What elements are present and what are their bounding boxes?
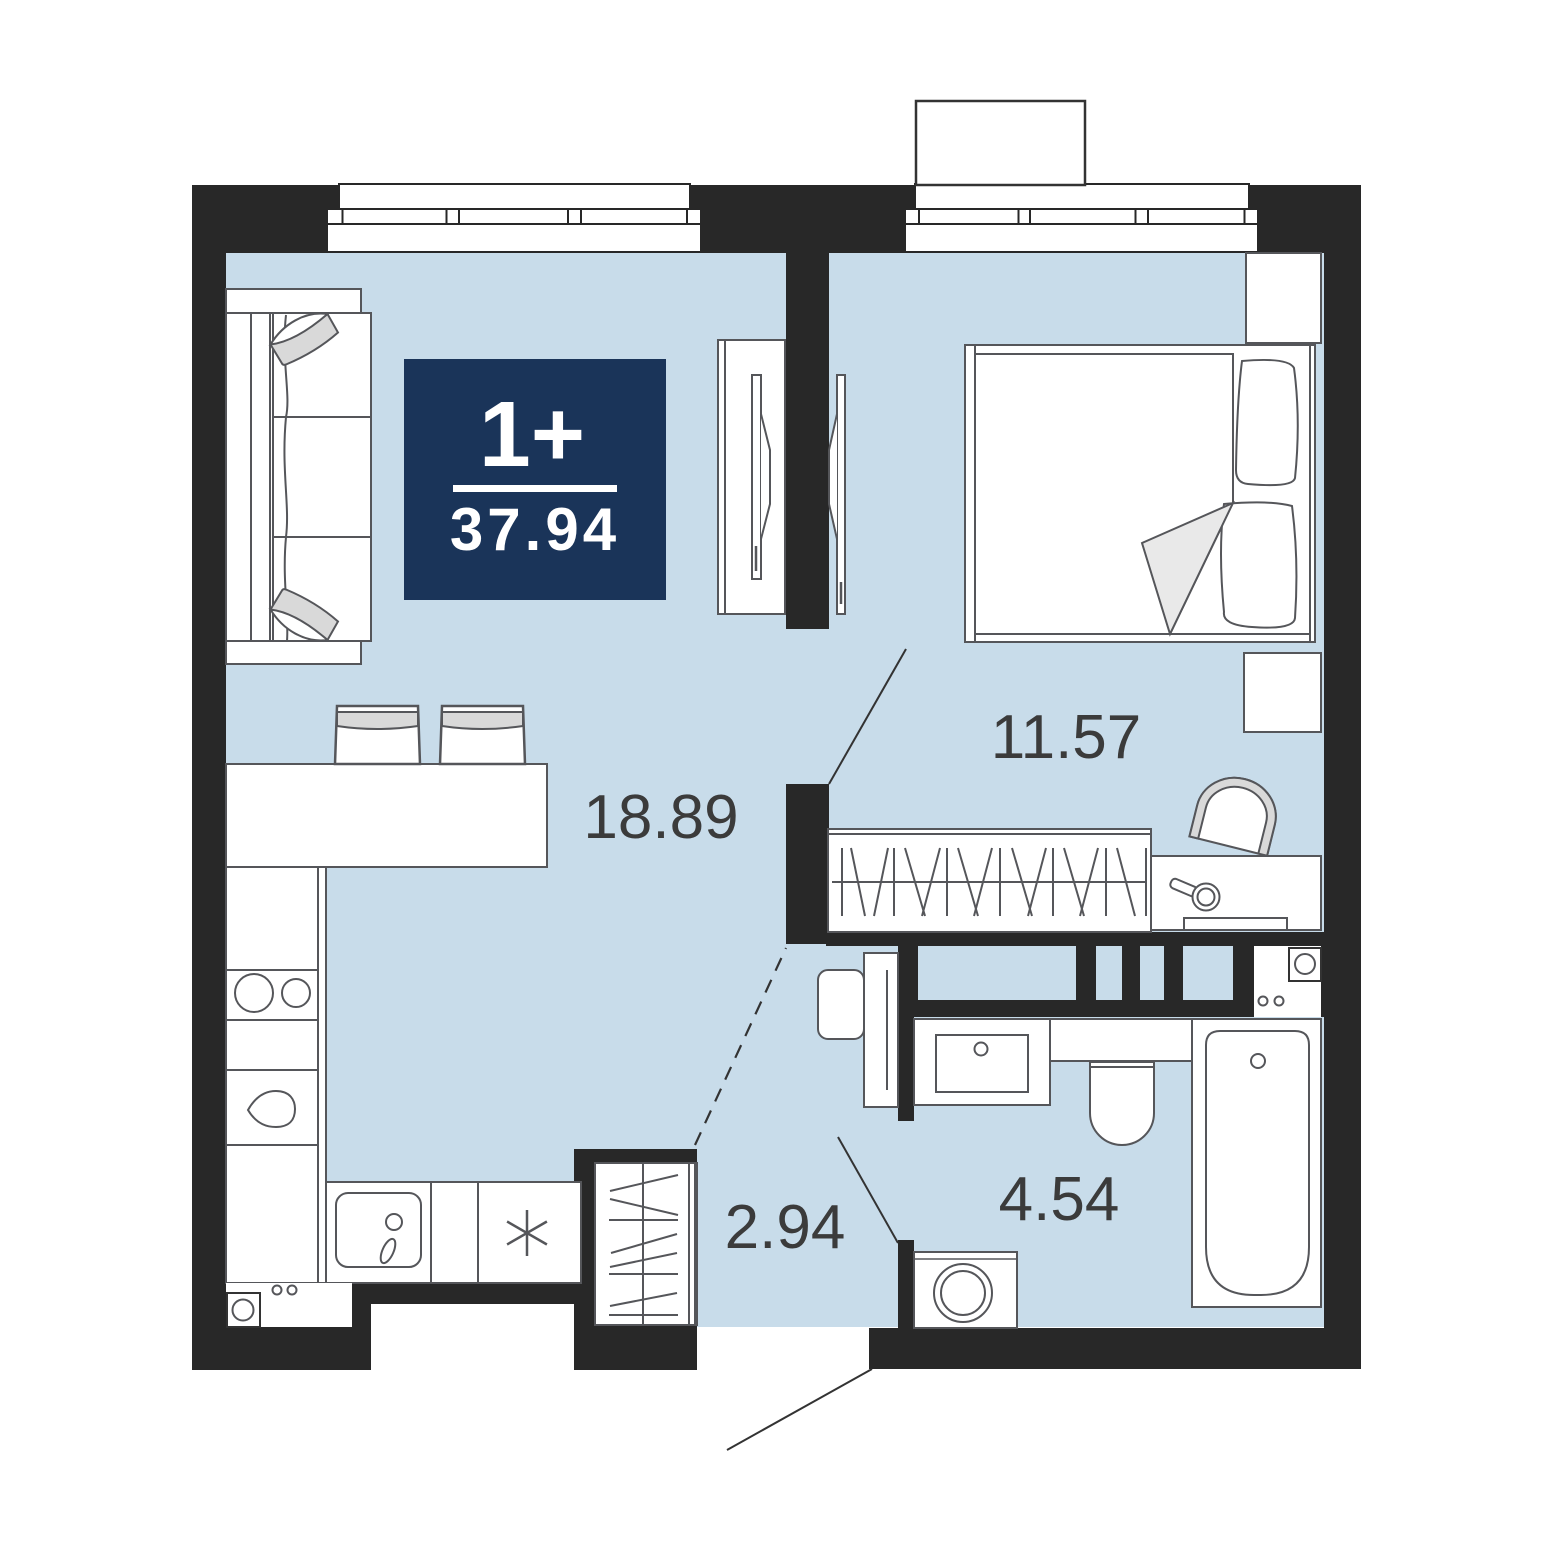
svg-text:1+: 1+ — [479, 382, 585, 486]
svg-text:2.94: 2.94 — [725, 1193, 846, 1262]
svg-text:37.94: 37.94 — [450, 496, 620, 563]
svg-text:4.54: 4.54 — [999, 1165, 1120, 1234]
svg-text:18.89: 18.89 — [583, 783, 738, 852]
svg-text:11.57: 11.57 — [991, 703, 1142, 772]
